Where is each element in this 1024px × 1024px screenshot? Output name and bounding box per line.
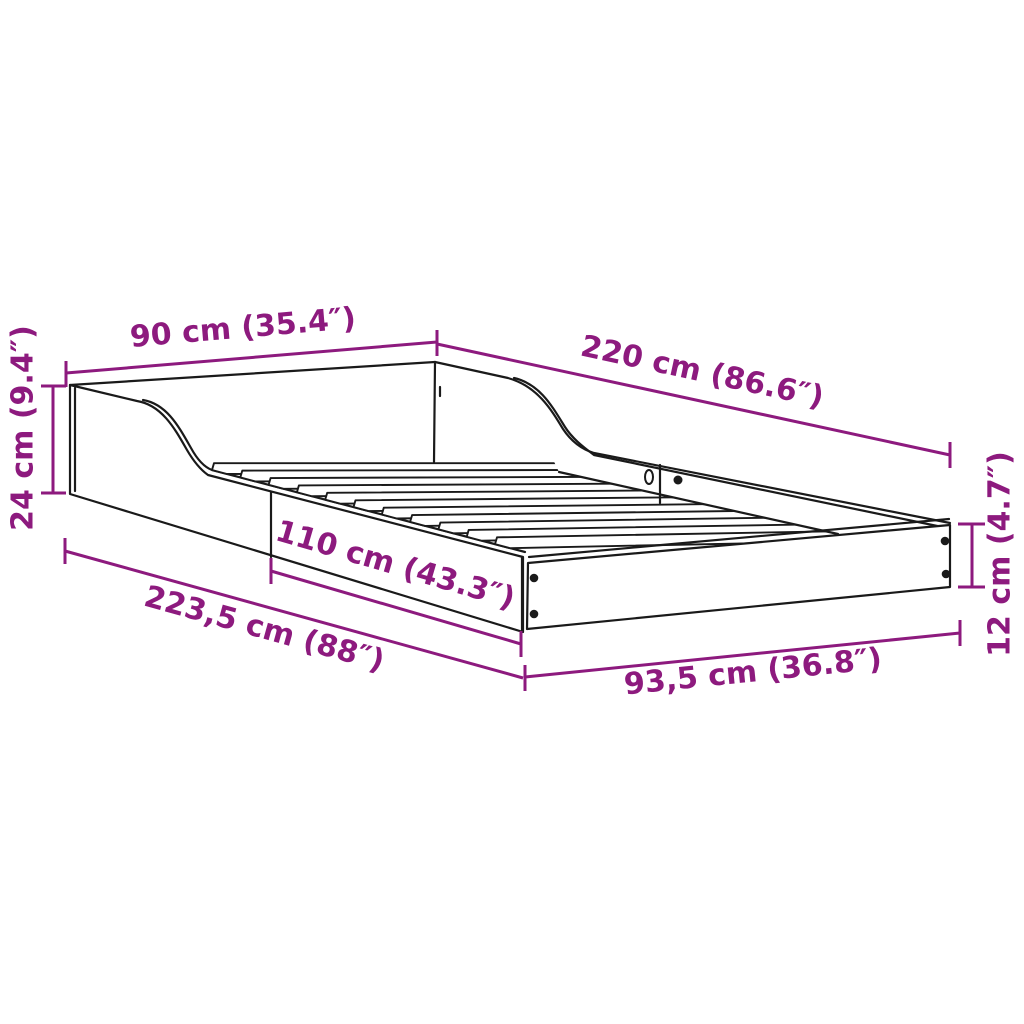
screw (941, 537, 950, 546)
screw (530, 610, 539, 619)
dimension-label-headboard-height: 24 cm (9.4″) (6, 325, 41, 531)
dimension-length-back: 220 cm (86.6″) (437, 329, 950, 468)
dimension-foot-end-width: 93,5 cm (36.8″) (525, 620, 960, 702)
dimension-foot-rail-height: 12 cm (4.7″) (958, 451, 1018, 657)
headboard-panel (70, 362, 435, 385)
screw (942, 570, 951, 579)
screw (674, 476, 683, 485)
headboard-far-corner-edge (434, 362, 435, 462)
screw (530, 574, 539, 583)
dowel-hole (645, 470, 653, 484)
dimension-label-foot-rail-height: 12 cm (4.7″) (983, 451, 1018, 657)
dimension-label-head-end-width: 90 cm (35.4″) (129, 301, 358, 355)
headboard-top-edge (70, 362, 435, 385)
bed-frame-dimension-diagram: 24 cm (9.4″) 90 cm (35.4″) 220 cm (86.6″… (0, 0, 1024, 1024)
dimension-headboard-height: 24 cm (9.4″) (6, 325, 67, 531)
dimension-label-foot-end-width: 93,5 cm (36.8″) (622, 642, 883, 703)
dimension-diagram-page: 24 cm (9.4″) 90 cm (35.4″) 220 cm (86.6″… (0, 0, 1024, 1024)
